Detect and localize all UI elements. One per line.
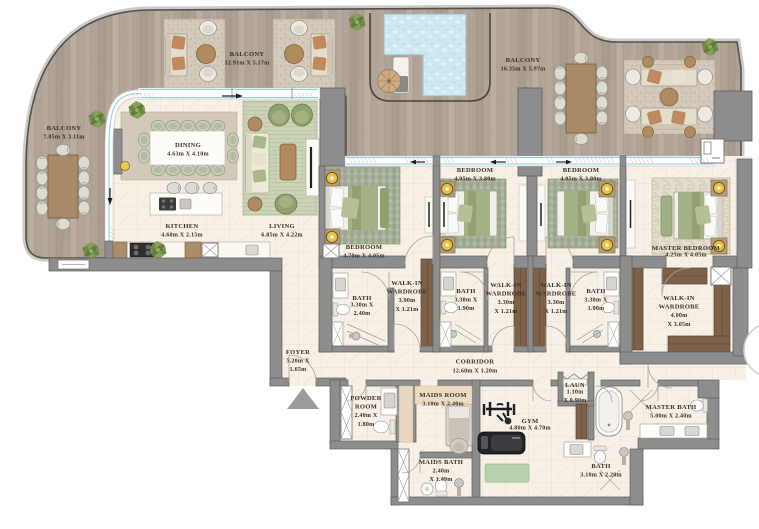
svg-text:3.30m: 3.30m: [548, 300, 565, 306]
svg-text:MAIDS ROOM: MAIDS ROOM: [419, 392, 467, 399]
svg-text:5.20m X: 5.20m X: [286, 359, 309, 365]
svg-text:LAUN: LAUN: [565, 382, 585, 389]
svg-text:WARDROBE: WARDROBE: [536, 291, 577, 298]
svg-text:4.05m X 3.80m: 4.05m X 3.80m: [454, 177, 496, 183]
svg-text:3.30m X: 3.30m X: [350, 302, 373, 308]
svg-text:1.90m: 1.90m: [458, 306, 475, 312]
svg-text:3.10m X 2.40m: 3.10m X 2.40m: [422, 402, 464, 408]
svg-text:FOYER: FOYER: [286, 349, 310, 356]
svg-text:DINING: DINING: [175, 142, 201, 149]
svg-text:BATH: BATH: [591, 463, 611, 470]
svg-text:X 1.49m: X 1.49m: [429, 477, 452, 483]
svg-text:12.91m X 5.17m: 12.91m X 5.17m: [225, 61, 270, 67]
svg-text:16.35m X 5.97m: 16.35m X 5.97m: [501, 67, 546, 73]
svg-text:3.30m X: 3.30m X: [584, 298, 607, 304]
svg-text:X 3.05m: X 3.05m: [667, 322, 690, 328]
svg-text:3.30m: 3.30m: [498, 300, 515, 306]
svg-text:6.85m X 4.22m: 6.85m X 4.22m: [261, 233, 303, 239]
svg-text:4.05m X 3.80m: 4.05m X 3.80m: [560, 177, 602, 183]
svg-text:BEDROOM: BEDROOM: [563, 167, 600, 174]
svg-text:BALCONY: BALCONY: [506, 57, 541, 64]
svg-text:MAIDS BATH: MAIDS BATH: [419, 459, 464, 466]
svg-text:4.63m X 4.10m: 4.63m X 4.10m: [167, 152, 209, 158]
svg-text:2.40m X: 2.40m X: [354, 413, 377, 419]
svg-text:X 1.21m: X 1.21m: [395, 307, 418, 313]
svg-text:WALK-IN: WALK-IN: [391, 280, 422, 287]
svg-text:7.05m X 3.11m: 7.05m X 3.11m: [43, 135, 84, 141]
svg-text:POWDER: POWDER: [350, 395, 381, 402]
svg-text:BALCONY: BALCONY: [47, 125, 82, 132]
svg-text:ROOM: ROOM: [355, 404, 378, 411]
svg-text:LIVING: LIVING: [269, 223, 295, 230]
svg-text:X 0.90m: X 0.90m: [563, 398, 586, 404]
svg-text:GYM: GYM: [522, 418, 539, 425]
svg-text:X 1.21m: X 1.21m: [494, 309, 517, 315]
svg-text:KITCHEN: KITCHEN: [166, 223, 199, 230]
svg-text:1.80m: 1.80m: [358, 422, 375, 428]
svg-text:2.40m: 2.40m: [433, 469, 450, 475]
svg-text:BATH: BATH: [456, 288, 476, 295]
svg-text:BEDROOM: BEDROOM: [457, 167, 494, 174]
svg-text:1.90m: 1.90m: [588, 306, 605, 312]
svg-text:4.60m X 2.15m: 4.60m X 2.15m: [161, 233, 203, 239]
svg-text:BATH: BATH: [586, 288, 606, 295]
svg-text:MASTER BATH: MASTER BATH: [646, 404, 697, 411]
svg-text:4.00m: 4.00m: [671, 313, 688, 319]
svg-text:X 1.21m: X 1.21m: [544, 309, 567, 315]
svg-text:12.60m X 1.20m: 12.60m X 1.20m: [453, 369, 498, 375]
svg-text:WARDROBE: WARDROBE: [659, 304, 700, 311]
svg-text:CORRIDOR: CORRIDOR: [456, 359, 495, 366]
svg-text:WALK-IN: WALK-IN: [540, 282, 571, 289]
svg-text:MASTER BEDROOM: MASTER BEDROOM: [652, 245, 721, 252]
svg-text:WARDROBE: WARDROBE: [387, 289, 428, 296]
svg-text:1.10m: 1.10m: [567, 389, 584, 395]
svg-text:4.80m X 4.70m: 4.80m X 4.70m: [509, 425, 551, 431]
svg-text:3.10m X 2.20m: 3.10m X 2.20m: [580, 473, 622, 479]
svg-text:WALK-IN: WALK-IN: [663, 295, 694, 302]
svg-text:WARDROBE: WARDROBE: [486, 291, 527, 298]
svg-text:3.90m: 3.90m: [399, 298, 416, 304]
svg-text:WALK-IN: WALK-IN: [490, 282, 521, 289]
svg-text:2.40m: 2.40m: [354, 311, 371, 317]
svg-text:4.25m X 4.05m: 4.25m X 4.05m: [665, 252, 707, 258]
svg-text:5.00m X 2.40m: 5.00m X 2.40m: [650, 414, 692, 420]
svg-text:4.70m X 4.05m: 4.70m X 4.05m: [343, 254, 385, 260]
svg-text:1.65m: 1.65m: [290, 367, 307, 373]
svg-text:BATH: BATH: [352, 295, 372, 302]
svg-text:3.30m X: 3.30m X: [454, 298, 477, 304]
svg-text:BEDROOM: BEDROOM: [346, 244, 383, 251]
svg-text:BALCONY: BALCONY: [230, 51, 265, 58]
